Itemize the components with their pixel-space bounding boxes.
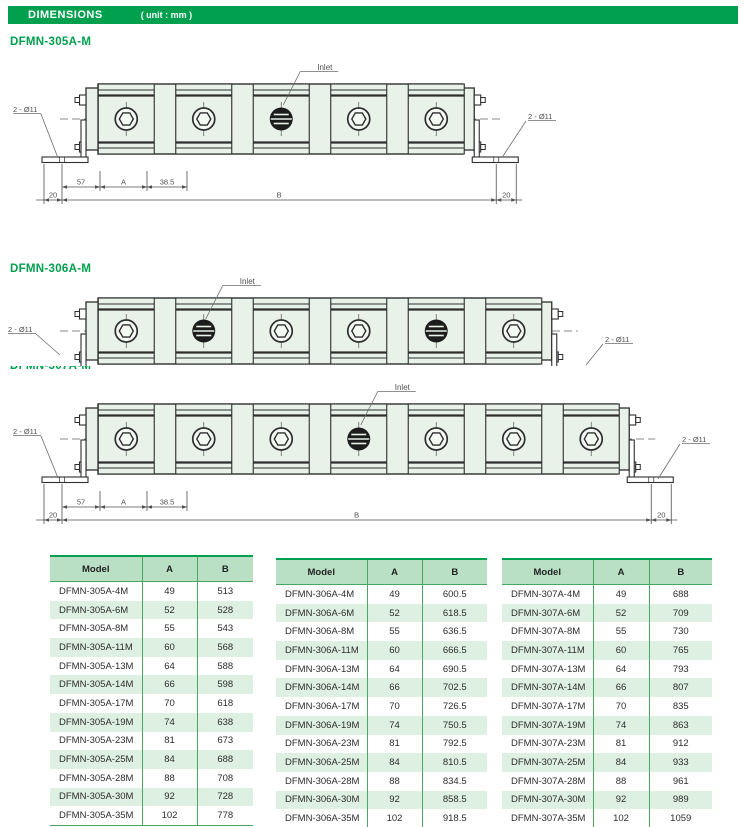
value-cell: 74 [593,716,649,735]
value-cell: 912 [649,735,712,754]
model-cell: DFMN-306A-6M [276,604,367,623]
dim-value: 20 [502,191,510,200]
table-row: DFMN-305A-13M64588 [50,657,253,676]
table-row: DFMN-307A-30M92989 [502,791,712,810]
column-header: A [142,556,197,582]
bolt-tip-icon [481,98,486,103]
value-cell: 52 [367,604,422,623]
table-row: DFMN-307A-23M81912 [502,735,712,754]
datasheet-page: DIMENSIONS ( unit : mm ) DFMN-305A-M Inl… [0,0,746,827]
end-cap-left [86,302,98,360]
column-header: B [197,556,253,582]
table-row: DFMN-307A-28M88961 [502,772,712,791]
bolt-tip-icon [75,465,80,470]
model-cell: DFMN-305A-4M [50,582,142,601]
end-cap-left [86,88,98,150]
value-cell: 618 [197,694,253,713]
hole-callout-left: 2 - Ø11 [13,427,37,436]
inlet-label: Inlet [317,63,333,72]
table-row: DFMN-305A-17M70618 [50,694,253,713]
bracket-foot-right [627,477,673,483]
table-row: DFMN-307A-19M74863 [502,716,712,735]
value-cell: 49 [367,585,422,604]
value-cell: 49 [142,582,197,601]
table-row: DFMN-306A-19M74750.5 [276,716,487,735]
dim-value: 20 [49,191,57,200]
bracket-plate-right [552,334,557,366]
model-cell: DFMN-306A-25M [276,753,367,772]
table-row: DFMN-306A-30M92858.5 [276,791,487,810]
table-row: DFMN-306A-25M84810.5 [276,753,487,772]
value-cell: 70 [142,694,197,713]
table-row: DFMN-305A-14M66598 [50,675,253,694]
column-header: B [649,559,712,585]
table-row: DFMN-307A-4M49688 [502,585,712,604]
table-row: DFMN-306A-35M102918.5 [276,809,487,827]
table-row: DFMN-305A-19M74638 [50,713,253,732]
value-cell: 807 [649,678,712,697]
model-cell: DFMN-305A-30M [50,788,142,807]
value-cell: 64 [142,657,197,676]
value-cell: 933 [649,753,712,772]
value-cell: 1059 [649,809,712,827]
table-header-row: ModelAB [276,559,487,585]
value-cell: 88 [367,772,422,791]
value-cell: 66 [142,675,197,694]
value-cell: 989 [649,791,712,810]
inlet-label: Inlet [395,383,411,392]
table-row: DFMN-307A-14M66807 [502,678,712,697]
column-header: A [367,559,422,585]
model-cell: DFMN-305A-35M [50,806,142,825]
value-cell: 74 [142,713,197,732]
model-cell: DFMN-307A-25M [502,753,593,772]
table-row: DFMN-306A-17M70726.5 [276,697,487,716]
value-cell: 60 [593,641,649,660]
table-row: DFMN-307A-35M1021059 [502,809,712,827]
hole-callout-right: 2 - Ø11 [682,435,706,444]
bolt-icon [474,95,481,105]
value-cell: 81 [593,735,649,754]
table-row: DFMN-306A-6M52618.5 [276,604,487,623]
model-cell: DFMN-305A-14M [50,675,142,694]
value-cell: 102 [593,809,649,827]
model-cell: DFMN-305A-28M [50,769,142,788]
table-row: DFMN-307A-6M52709 [502,604,712,623]
value-cell: 690.5 [422,660,487,679]
value-cell: 918.5 [422,809,487,827]
model-cell: DFMN-307A-30M [502,791,593,810]
housing-body [98,298,540,364]
bolt-icon [80,309,87,319]
model-cell: DFMN-305A-8M [50,619,142,638]
value-cell: 60 [367,641,422,660]
dim-value: A [121,498,126,507]
value-cell: 778 [197,806,253,825]
value-cell: 568 [197,638,253,657]
value-cell: 750.5 [422,716,487,735]
value-cell: 543 [197,619,253,638]
value-cell: 728 [197,788,253,807]
model-cell: DFMN-305A-23M [50,732,142,751]
table-row: DFMN-305A-30M92728 [50,788,253,807]
model-cell: DFMN-306A-35M [276,809,367,827]
model-cell: DFMN-307A-11M [502,641,593,660]
table-row: DFMN-305A-11M60568 [50,638,253,657]
table-header-row: ModelAB [502,559,712,585]
column-header: Model [502,559,593,585]
bolt-tip-icon [481,145,486,150]
dim-value: 20 [49,511,57,520]
spec-table-dfmn-306a: ModelABDFMN-306A-4M49600.5DFMN-306A-6M52… [276,558,487,827]
model-cell: DFMN-306A-17M [276,697,367,716]
bracket-plate-left [81,334,86,366]
value-cell: 709 [649,604,712,623]
model-cell: DFMN-306A-30M [276,791,367,810]
model-cell: DFMN-306A-11M [276,641,367,660]
value-cell: 88 [142,769,197,788]
model-cell: DFMN-306A-14M [276,678,367,697]
table-row: DFMN-306A-8M55636.5 [276,622,487,641]
value-cell: 600.5 [422,585,487,604]
bracket-foot-left [42,157,88,163]
value-cell: 84 [367,753,422,772]
dim-value: 57 [77,178,85,187]
technical-drawing-dfmn-307a-m: Inlet2 - Ø112 - Ø1157A38.520B20 [0,378,746,533]
model-cell: DFMN-307A-6M [502,604,593,623]
table-row: DFMN-306A-13M64690.5 [276,660,487,679]
value-cell: 598 [197,675,253,694]
value-cell: 66 [593,678,649,697]
value-cell: 834.5 [422,772,487,791]
value-cell: 835 [649,697,712,716]
dim-value: B [277,191,282,200]
section-title: DIMENSIONS [28,9,103,21]
bracket-plate-left [81,440,86,480]
model-cell: DFMN-305A-6M [50,601,142,620]
value-cell: 55 [593,622,649,641]
value-cell: 66 [367,678,422,697]
bolt-icon [629,415,636,425]
dim-value: A [121,178,126,187]
model-cell: DFMN-307A-35M [502,809,593,827]
value-cell: 81 [142,732,197,751]
bolt-tip-icon [558,355,563,360]
model-cell: DFMN-306A-8M [276,622,367,641]
value-cell: 673 [197,732,253,751]
table-row: DFMN-307A-17M70835 [502,697,712,716]
model-cell: DFMN-306A-23M [276,735,367,754]
value-cell: 810.5 [422,753,487,772]
table-row: DFMN-305A-25M84688 [50,750,253,769]
model-cell: DFMN-306A-28M [276,772,367,791]
bracket-plate-right [474,120,479,160]
section-header-bar: DIMENSIONS ( unit : mm ) [8,6,738,24]
bolt-tip-icon [75,312,80,317]
value-cell: 688 [197,750,253,769]
bracket-foot-left [42,477,88,483]
hole-callout-right: 2 - Ø11 [528,112,552,121]
value-cell: 49 [593,585,649,604]
dim-value: 20 [657,511,665,520]
bolt-icon [80,415,87,425]
model-cell: DFMN-305A-13M [50,657,142,676]
value-cell: 70 [593,697,649,716]
unit-note: ( unit : mm ) [141,10,193,20]
column-header: A [593,559,649,585]
column-header: Model [276,559,367,585]
model-cell: DFMN-306A-13M [276,660,367,679]
table-row: DFMN-305A-8M55543 [50,619,253,638]
inlet-label: Inlet [240,277,256,286]
value-cell: 793 [649,660,712,679]
technical-drawing-dfmn-305a-m: Inlet2 - Ø112 - Ø1157A38.520B20 [0,58,746,210]
value-cell: 60 [142,638,197,657]
value-cell: 528 [197,601,253,620]
drawing-title-dfmn-305a-m: DFMN-305A-M [10,36,91,48]
bolt-icon [80,95,87,105]
dimensions-table: ModelABDFMN-305A-4M49513DFMN-305A-6M5252… [50,555,253,826]
value-cell: 792.5 [422,735,487,754]
value-cell: 858.5 [422,791,487,810]
value-cell: 726.5 [422,697,487,716]
model-cell: DFMN-307A-28M [502,772,593,791]
value-cell: 84 [142,750,197,769]
bolt-tip-icon [75,145,80,150]
value-cell: 102 [367,809,422,827]
table-header-row: ModelAB [50,556,253,582]
hole-callout-right: 2 - Ø11 [605,335,629,344]
column-header: B [422,559,487,585]
hole-callout-left: 2 - Ø11 [8,325,32,334]
dimensions-table: ModelABDFMN-307A-4M49688DFMN-307A-6M5270… [502,558,712,827]
bolt-tip-icon [558,312,563,317]
bolt-tip-icon [75,418,80,423]
value-cell: 102 [142,806,197,825]
table-row: DFMN-307A-11M60765 [502,641,712,660]
model-cell: DFMN-305A-17M [50,694,142,713]
value-cell: 64 [593,660,649,679]
table-row: DFMN-305A-23M81673 [50,732,253,751]
dimensions-table: ModelABDFMN-306A-4M49600.5DFMN-306A-6M52… [276,558,487,827]
value-cell: 92 [593,791,649,810]
model-cell: DFMN-306A-4M [276,585,367,604]
model-cell: DFMN-305A-25M [50,750,142,769]
model-cell: DFMN-307A-14M [502,678,593,697]
bolt-tip-icon [75,98,80,103]
value-cell: 55 [367,622,422,641]
bracket-plate-right [629,440,634,480]
table-row: DFMN-306A-4M49600.5 [276,585,487,604]
value-cell: 70 [367,697,422,716]
end-cap-left [86,408,98,470]
model-cell: DFMN-307A-4M [502,585,593,604]
value-cell: 92 [142,788,197,807]
column-header: Model [50,556,142,582]
value-cell: 64 [367,660,422,679]
bolt-tip-icon [636,465,641,470]
table-row: DFMN-305A-6M52528 [50,601,253,620]
table-row: DFMN-305A-35M102778 [50,806,253,825]
value-cell: 730 [649,622,712,641]
value-cell: 588 [197,657,253,676]
value-cell: 84 [593,753,649,772]
value-cell: 55 [142,619,197,638]
model-cell: DFMN-307A-13M [502,660,593,679]
table-row: DFMN-306A-23M81792.5 [276,735,487,754]
value-cell: 961 [649,772,712,791]
bracket-foot-right [472,157,518,163]
model-cell: DFMN-307A-8M [502,622,593,641]
table-row: DFMN-306A-28M88834.5 [276,772,487,791]
dim-value: B [354,511,359,520]
dim-value: 38.5 [160,498,175,507]
value-cell: 688 [649,585,712,604]
table-row: DFMN-307A-8M55730 [502,622,712,641]
model-cell: DFMN-306A-19M [276,716,367,735]
model-cell: DFMN-307A-19M [502,716,593,735]
value-cell: 88 [593,772,649,791]
value-cell: 52 [142,601,197,620]
value-cell: 863 [649,716,712,735]
technical-drawing-dfmn-306a-m: Inlet2 - Ø112 - Ø11 [0,272,746,366]
bracket-plate-left [81,120,86,160]
value-cell: 81 [367,735,422,754]
value-cell: 92 [367,791,422,810]
value-cell: 666.5 [422,641,487,660]
value-cell: 513 [197,582,253,601]
value-cell: 74 [367,716,422,735]
model-cell: DFMN-307A-23M [502,735,593,754]
value-cell: 638 [197,713,253,732]
value-cell: 702.5 [422,678,487,697]
dim-value: 57 [77,498,85,507]
spec-table-dfmn-307a: ModelABDFMN-307A-4M49688DFMN-307A-6M5270… [502,558,712,827]
model-cell: DFMN-305A-19M [50,713,142,732]
value-cell: 636.5 [422,622,487,641]
bolt-icon [552,309,559,319]
table-row: DFMN-306A-11M60666.5 [276,641,487,660]
table-row: DFMN-307A-13M64793 [502,660,712,679]
spec-table-dfmn-305a: ModelABDFMN-305A-4M49513DFMN-305A-6M5252… [50,555,253,826]
table-row: DFMN-305A-4M49513 [50,582,253,601]
value-cell: 52 [593,604,649,623]
table-row: DFMN-305A-28M88708 [50,769,253,788]
value-cell: 765 [649,641,712,660]
bolt-tip-icon [75,355,80,360]
model-cell: DFMN-305A-11M [50,638,142,657]
hole-callout-left: 2 - Ø11 [13,105,37,114]
value-cell: 708 [197,769,253,788]
value-cell: 618.5 [422,604,487,623]
dim-value: 38.5 [160,178,175,187]
model-cell: DFMN-307A-17M [502,697,593,716]
table-row: DFMN-306A-14M66702.5 [276,678,487,697]
bolt-tip-icon [636,418,641,423]
table-row: DFMN-307A-25M84933 [502,753,712,772]
